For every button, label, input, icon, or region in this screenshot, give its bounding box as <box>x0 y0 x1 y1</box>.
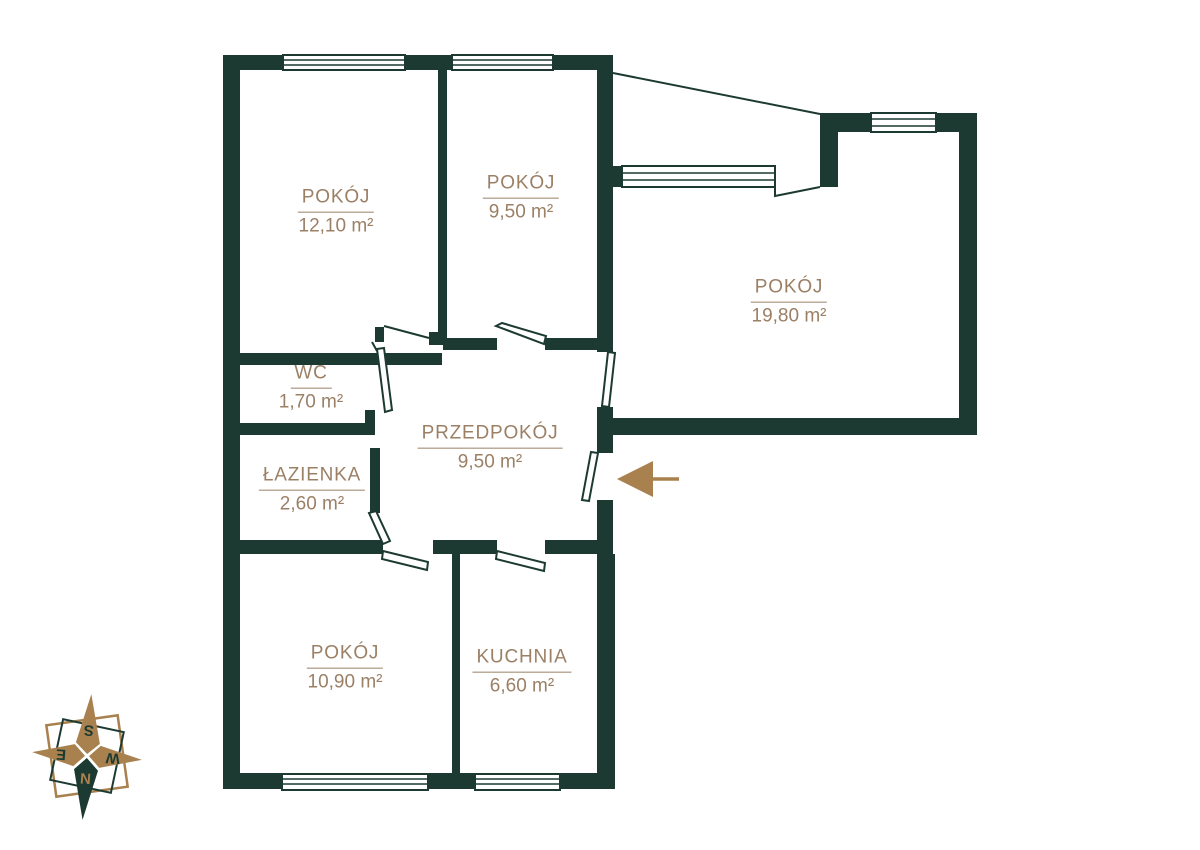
door-leaf <box>582 452 598 501</box>
wall-segment <box>597 418 977 435</box>
compass-rose: N S E W <box>28 690 147 823</box>
wall-segment <box>223 55 613 70</box>
room-label-przedpokoj: PRZEDPOKÓJ 9,50 m² <box>418 423 563 474</box>
window <box>283 55 405 70</box>
door-leaf <box>496 551 545 571</box>
room-label-pokoj-1: POKÓJ 12,10 m² <box>298 187 374 238</box>
compass-letter-w: W <box>104 749 120 767</box>
room-label-pokoj-2: POKÓJ 9,50 m² <box>483 173 559 224</box>
room-label-lazienka: ŁAZIENKA 2,60 m² <box>259 465 365 516</box>
room-area: 9,50 m² <box>418 452 563 474</box>
window <box>282 774 428 790</box>
floor-plan: N S E W <box>0 0 1200 850</box>
wall-segment <box>370 448 380 513</box>
compass-letter-n: N <box>79 769 91 787</box>
door-leaf <box>369 511 390 544</box>
window <box>622 166 775 187</box>
door-leaf <box>382 551 428 570</box>
room-area: 12,10 m² <box>298 216 374 238</box>
wall-segment <box>375 327 384 342</box>
room-area: 6,60 m² <box>472 676 571 698</box>
window <box>871 113 936 132</box>
facade-line <box>372 342 377 351</box>
room-name: KUCHNIA <box>472 647 571 673</box>
wall-segment <box>959 113 977 435</box>
entrance-arrow-icon <box>617 461 679 497</box>
door-leaf <box>384 326 429 338</box>
room-label-wc: WC 1,70 m² <box>279 363 343 414</box>
wall-segment <box>433 540 497 554</box>
room-name: ŁAZIENKA <box>259 465 365 491</box>
room-area: 10,90 m² <box>307 672 383 694</box>
room-label-pokoj-3: POKÓJ 19,80 m² <box>751 277 827 328</box>
room-area: 19,80 m² <box>751 306 827 328</box>
room-name: PRZEDPOKÓJ <box>418 423 563 449</box>
room-label-kuchnia: KUCHNIA 6,60 m² <box>472 647 571 698</box>
door-leaf <box>602 352 615 407</box>
wall-segment <box>443 338 497 350</box>
wall-segment <box>365 410 375 423</box>
room-name: POKÓJ <box>307 643 383 669</box>
room-area: 2,60 m² <box>259 494 365 516</box>
wall-segment <box>597 55 613 352</box>
room-label-pokoj-4: POKÓJ 10,90 m² <box>307 643 383 694</box>
wall-segment <box>438 70 447 332</box>
room-name: WC <box>290 363 331 389</box>
wall-segment <box>223 540 383 554</box>
compass-letter-s: S <box>83 721 94 739</box>
facade-line <box>613 73 820 114</box>
room-area: 9,50 m² <box>483 202 559 224</box>
window <box>475 774 560 790</box>
room-name: POKÓJ <box>751 277 827 303</box>
facade-line <box>775 187 820 196</box>
room-name: POKÓJ <box>483 173 559 199</box>
wall-segment <box>240 423 375 435</box>
wall-segment <box>597 554 615 773</box>
room-name: POKÓJ <box>298 187 374 213</box>
wall-segment <box>452 554 460 773</box>
wall-segment <box>545 338 597 350</box>
wall-segment <box>223 55 240 788</box>
compass-letter-e: E <box>55 745 66 763</box>
wall-segment <box>545 540 613 554</box>
door-leaf <box>496 323 546 344</box>
window <box>452 55 553 70</box>
room-area: 1,70 m² <box>279 392 343 414</box>
